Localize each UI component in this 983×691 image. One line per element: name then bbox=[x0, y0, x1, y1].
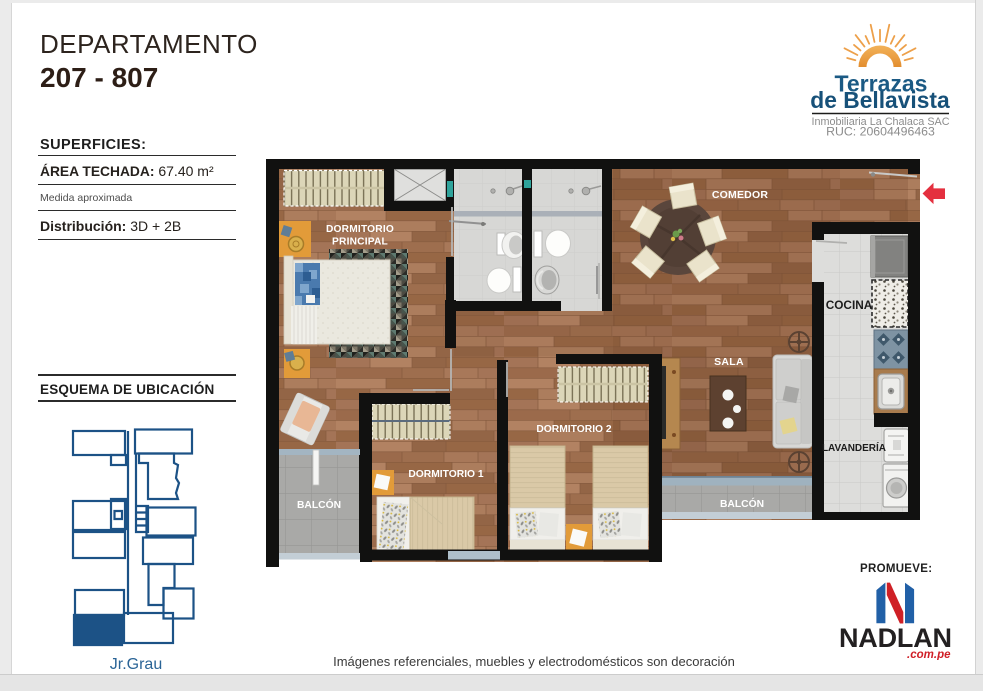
svg-text:RUC: 20604496463: RUC: 20604496463 bbox=[826, 125, 935, 139]
svg-text:DORMITORIO 1: DORMITORIO 1 bbox=[408, 469, 484, 480]
svg-text:PRINCIPAL: PRINCIPAL bbox=[332, 237, 388, 248]
svg-text:SALA: SALA bbox=[714, 356, 744, 368]
svg-text:BALCÓN: BALCÓN bbox=[297, 498, 341, 511]
svg-text:BALCÓN: BALCÓN bbox=[720, 497, 764, 510]
svg-text:COCINA: COCINA bbox=[826, 298, 873, 312]
svg-text:COMEDOR: COMEDOR bbox=[712, 189, 768, 201]
svg-text:DORMITORIO 2: DORMITORIO 2 bbox=[536, 424, 612, 435]
svg-text:LAVANDERÍA: LAVANDERÍA bbox=[822, 441, 886, 454]
svg-text:DORMITORIO: DORMITORIO bbox=[326, 224, 394, 235]
svg-text:.com.pe: .com.pe bbox=[907, 649, 951, 660]
svg-text:de Bellavista: de Bellavista bbox=[810, 87, 950, 113]
